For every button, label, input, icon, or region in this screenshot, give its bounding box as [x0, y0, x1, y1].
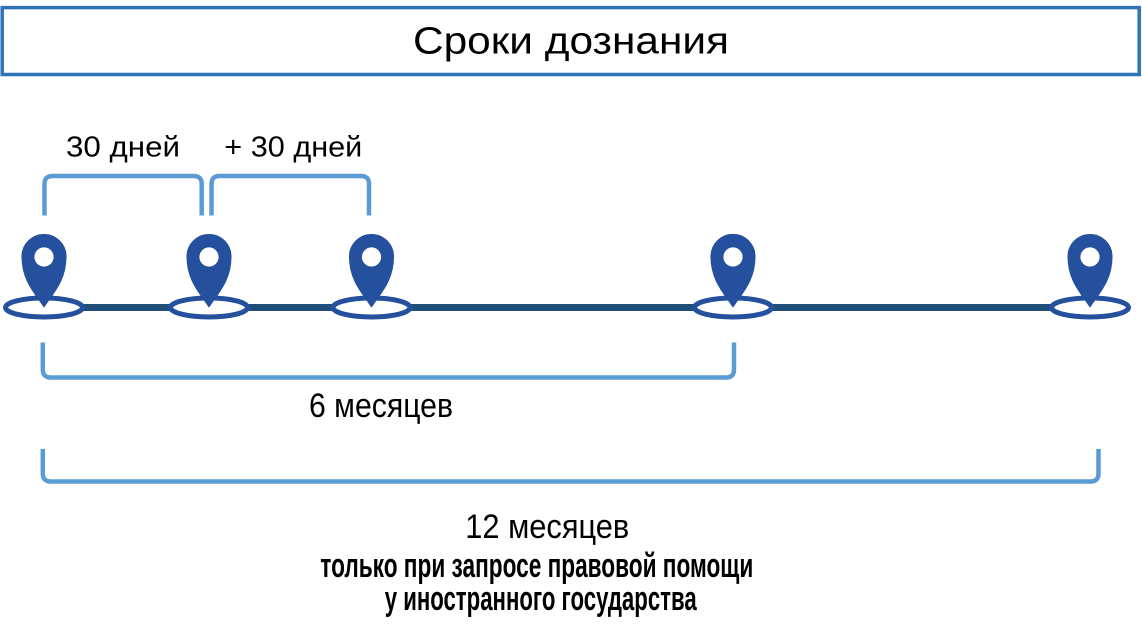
svg-text:6 месяцев: 6 месяцев: [309, 387, 453, 425]
svg-text:12 месяцев: 12 месяцев: [465, 508, 629, 546]
svg-text:+ 30 дней: + 30 дней: [224, 132, 362, 164]
svg-text:30 дней: 30 дней: [66, 132, 180, 164]
svg-text:Сроки дознания: Сроки дознания: [413, 21, 729, 63]
svg-text:у иностранного государства: у иностранного государства: [385, 580, 698, 618]
